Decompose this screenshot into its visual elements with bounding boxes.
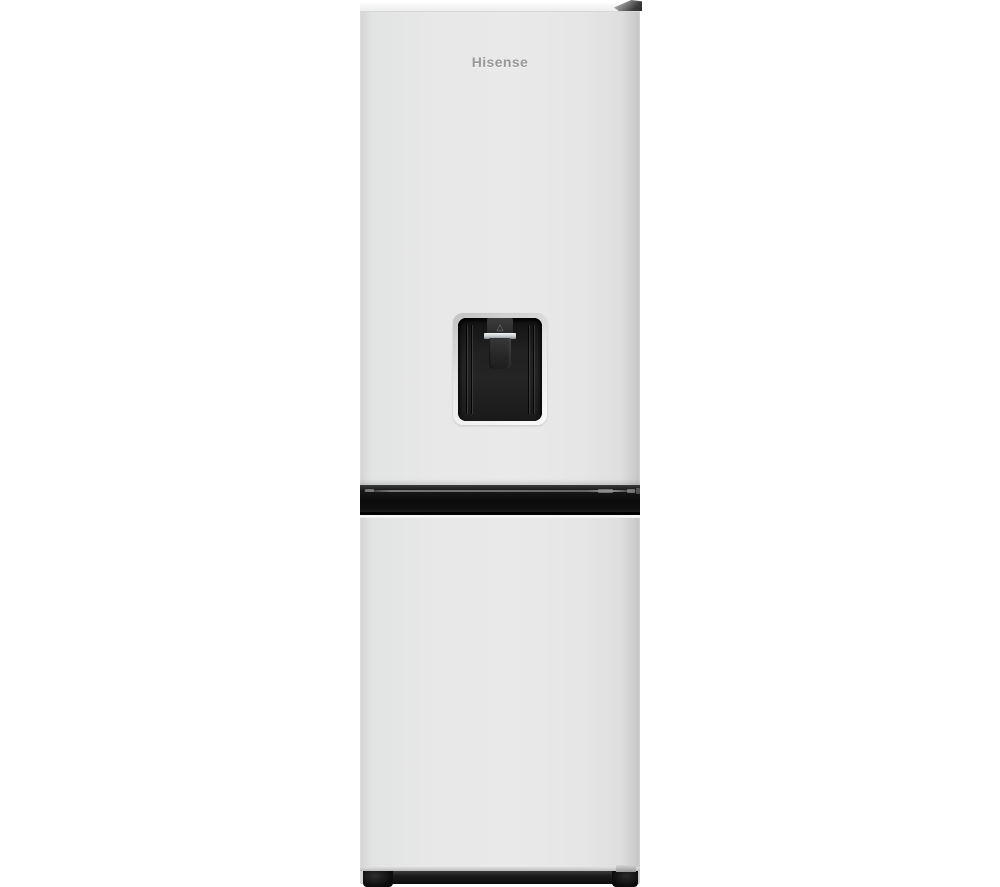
band-badge-mark: [636, 488, 640, 494]
dispenser-paddle: [489, 338, 511, 369]
dispenser-groove: [533, 325, 534, 414]
right-foot-bracket: [616, 865, 636, 872]
band-badge-mark: [627, 489, 635, 493]
cabinet-top: [360, 3, 640, 12]
dispenser-groove: [528, 325, 529, 414]
handle-band-highlight: [364, 490, 636, 492]
dispenser-groove: [466, 325, 467, 414]
plinth: [363, 871, 637, 884]
right-foot: [612, 871, 638, 887]
dispenser-groove: [471, 325, 472, 414]
band-badge-mark: [598, 489, 613, 493]
product-photo: Hisense △: [0, 0, 1000, 887]
brand-logo: Hisense: [360, 54, 640, 70]
left-foot: [363, 871, 393, 887]
fridge-body: [360, 3, 640, 884]
band-mark: [365, 489, 374, 492]
freezer-door-top-edge: [360, 515, 640, 518]
